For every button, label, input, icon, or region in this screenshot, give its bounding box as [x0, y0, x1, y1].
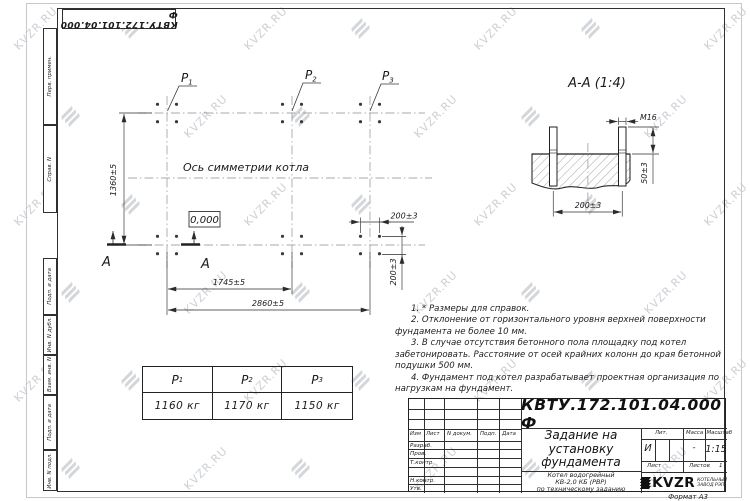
tb-lit-value: И — [641, 443, 655, 454]
tb-sheets-label: Листов — [689, 463, 710, 469]
p1-label: P1 — [181, 71, 193, 87]
kvzr-logo-text: KVZR — [652, 475, 695, 491]
notes-block: 1. * Размеры для справок. 2. Отклонение … — [395, 304, 742, 395]
svg-text:2860±5: 2860±5 — [252, 299, 284, 308]
tb-subject-line: по техническому заданию — [537, 486, 626, 493]
svg-text:0,000: 0,000 — [190, 215, 219, 226]
loads-table: P1 P2 P3 1160 кг 1170 кг 1150 кг — [142, 366, 353, 420]
level-mark: 0,000 — [189, 212, 220, 228]
tb-scale-value: 1:15 — [705, 444, 727, 455]
svg-text:200±3: 200±3 — [389, 258, 398, 285]
loads-value-p3: 1150 кг — [282, 393, 352, 419]
tb-title-line: установку — [549, 443, 614, 457]
note-4: 4. Фундамент под котел разрабатывает про… — [395, 373, 742, 396]
loads-header-p2: P2 — [213, 367, 283, 393]
note-3: 3. В случае отсутствия бетонного пола пл… — [395, 338, 742, 372]
kvzr-logo-icon — [641, 477, 650, 489]
tb-mass-label: Масса — [686, 430, 703, 436]
svg-text:200±3: 200±3 — [390, 212, 417, 221]
title-block: Изм Лист N докум. Подп. Дата Разраб. Про… — [408, 398, 726, 492]
tb-sheets-value: 1 — [719, 463, 723, 469]
p-load-labels: P1 P2 P3 — [181, 68, 394, 87]
tb-lit-label: Лит. — [655, 430, 667, 436]
p2-label: P2 — [305, 68, 317, 84]
section-view-title: А-А (1:4) — [567, 76, 626, 91]
tb-company: KVZR КОТЕЛЬНЫЙ ЗАВОД РЭП — [641, 472, 727, 493]
tb-mass-value: - — [683, 443, 705, 453]
loads-value-p2: 1170 кг — [213, 393, 283, 419]
p3-label: P3 — [382, 69, 394, 85]
tb-row-razrab: Разраб. — [410, 443, 432, 449]
tb-row-utv: Утв. — [410, 486, 422, 492]
loads-header-p3: P3 — [282, 367, 352, 393]
p-load-leaders — [168, 83, 400, 111]
company-name: КОТЕЛЬНЫЙ ЗАВОД РЭП — [697, 478, 727, 488]
note-1: 1. * Размеры для справок. — [395, 304, 742, 315]
tb-title: Задание на установку фундамента — [521, 428, 641, 471]
tb-scale-label: Масштаб — [707, 430, 733, 436]
tb-col-izm: Изм — [410, 431, 421, 437]
tb-col-data: Дата — [502, 431, 516, 437]
section-letter-1: А — [101, 255, 111, 270]
section-concrete — [532, 154, 630, 189]
tb-row-prov: Пров. — [410, 451, 426, 457]
tb-col-podp: Подп. — [480, 431, 496, 437]
section-cut-marks: А А — [101, 231, 210, 272]
svg-text:М16: М16 — [640, 113, 657, 122]
tb-row-tkontr: Т.контр. — [410, 460, 434, 466]
loads-header-p1: P1 — [143, 367, 213, 393]
plan-dimension-texts: 1360±5 1745±5 2860±5 200±3 200±3 — [109, 164, 418, 308]
tb-row-nkontr: Н.контр. — [410, 478, 435, 484]
tb-subject: Котел водогрейный КВ-2,0 КБ (РВР) по тех… — [521, 471, 641, 493]
note-2: 2. Отклонение от горизонтального уровня … — [395, 315, 742, 338]
section-letter-2: А — [200, 257, 210, 272]
tb-col-ndok: N докум. — [447, 431, 472, 437]
symmetry-axis-label: Ось симметрии котла — [183, 161, 309, 174]
tb-title-line: фундамента — [541, 456, 620, 470]
drawing-sheet: KVZR.RUKVZR.RUKVZR.RUKVZR.RUKVZR.RUKVZR.… — [0, 0, 750, 500]
plan-centerlines — [128, 96, 432, 268]
tb-sheet-label: Лист — [647, 463, 661, 469]
loads-value-p1: 1160 кг — [143, 393, 213, 419]
tb-doc-number: КВТУ.172.101.04.000 Ф — [521, 399, 727, 428]
tb-title-line: Задание на — [545, 429, 618, 443]
svg-text:1745±5: 1745±5 — [213, 278, 245, 287]
format-label: Формат А3 — [648, 493, 728, 501]
svg-text:1360±5: 1360±5 — [109, 164, 118, 196]
svg-text:200±3: 200±3 — [575, 201, 601, 210]
tb-col-list: Лист — [426, 431, 440, 437]
anchor-bolt-dots — [156, 103, 381, 256]
svg-text:50±3: 50±3 — [640, 162, 649, 183]
